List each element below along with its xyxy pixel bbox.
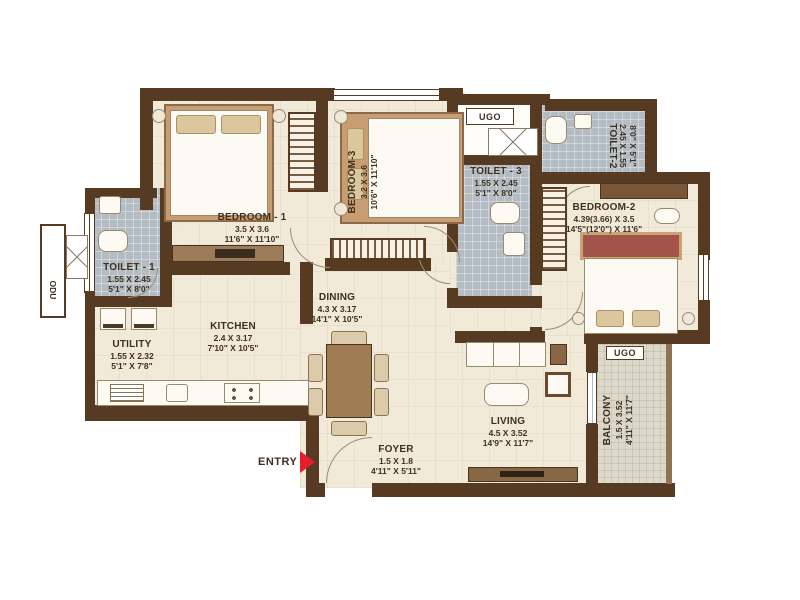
dining-label: DINING 4.3 X 3.17 14'1" X 10'5" xyxy=(312,292,363,324)
kitchen-hob xyxy=(224,383,260,403)
dining-chair xyxy=(331,421,367,436)
bedroom3-label: BEDROOM-3 3.2 X 3.6 10'6" X 11'10" xyxy=(347,151,379,214)
bedroom1-name: BEDROOM - 1 xyxy=(218,212,287,224)
duct-label-box: UGO xyxy=(466,108,514,125)
bedroom2-dim-m: 4.39(3.66) X 3.5 xyxy=(574,214,635,224)
kitchen-dim-ft: 7'10" X 10'5" xyxy=(208,343,259,353)
duct-hatch xyxy=(488,128,538,156)
living-dim-m: 4.5 X 3.52 xyxy=(489,428,528,438)
balcony-dim-ft: 4'11" X 11'7" xyxy=(624,395,634,445)
bedroom3-dim-ft: 10'6" X 11'10" xyxy=(369,154,379,209)
wall-segment xyxy=(140,88,335,101)
balcony-duct-label: UGO xyxy=(614,348,636,358)
dining-table xyxy=(326,344,372,418)
pillow xyxy=(221,115,261,134)
wall-segment xyxy=(545,99,657,111)
bedroom2-rug xyxy=(580,232,682,260)
window xyxy=(698,254,709,304)
living-name: LIVING xyxy=(491,416,526,428)
toilet1-sink xyxy=(99,196,121,214)
wall-segment xyxy=(85,291,95,417)
bedside-table xyxy=(334,202,348,216)
dining-chair xyxy=(374,354,389,382)
dining-chair xyxy=(308,388,323,416)
dining-chair xyxy=(308,354,323,382)
entry-arrow-icon xyxy=(300,451,315,473)
toilet2-label: TOILET-2 2.45 X 1.55 8'0" X 5'1" xyxy=(606,123,638,168)
utility-dim-ft: 5'1" X 7'8" xyxy=(111,361,152,371)
balcony-duct-box: UGO xyxy=(606,346,644,360)
toilet2-name: TOILET-2 xyxy=(606,123,618,168)
odu-label: ODU xyxy=(48,281,58,300)
toilet2-sink xyxy=(574,114,592,129)
kitchen-label: KITCHEN 2.4 X 3.17 7'10" X 10'5" xyxy=(208,321,259,353)
wall-segment xyxy=(85,405,319,421)
odu-text: ODU xyxy=(48,281,58,300)
utility-name: UTILITY xyxy=(112,339,151,351)
foyer-dim-m: 1.5 X 1.8 xyxy=(379,456,413,466)
wall-segment xyxy=(586,424,598,485)
entry-label: ENTRY xyxy=(258,456,297,468)
utility-label: UTILITY 1.55 X 2.32 5'1" X 7'8" xyxy=(110,339,153,371)
toilet1-wc xyxy=(98,230,128,252)
wall-segment xyxy=(645,99,657,183)
bedroom1-wardrobe xyxy=(288,112,316,192)
dining-dim-m: 4.3 X 3.17 xyxy=(318,304,357,314)
wall-segment xyxy=(447,296,542,308)
bedside-table xyxy=(334,110,348,124)
utility-dim-m: 1.55 X 2.32 xyxy=(110,351,153,361)
bedroom2-dresser xyxy=(600,183,688,199)
foyer-label: FOYER 1.5 X 1.8 4'11" X 5'11" xyxy=(371,444,421,476)
toilet3-wc xyxy=(490,202,520,224)
foyer-name: FOYER xyxy=(378,444,413,456)
floor-plan-page: { "plan": { "entry_label": "ENTRY", "roo… xyxy=(0,0,800,600)
bedside-table xyxy=(572,312,585,325)
wall-segment xyxy=(372,483,603,497)
balcony-label: BALCONY 1.5 X 3.52 4'11" X 11'7" xyxy=(602,395,634,446)
left-window-hatch xyxy=(66,235,88,279)
window xyxy=(333,89,441,101)
kitchen-drainboard xyxy=(110,384,144,402)
toilet3-dim-ft: 5'1" X 8'0" xyxy=(475,188,516,198)
washer-base xyxy=(134,324,154,328)
wall-segment xyxy=(85,188,157,198)
toilet3-sink xyxy=(503,232,525,256)
bedside-table xyxy=(152,109,166,123)
bedroom1-label: BEDROOM - 1 3.5 X 3.6 11'6" X 11'10" xyxy=(218,212,287,244)
sliding-door xyxy=(587,372,597,424)
bedroom2-dim-ft: 14'5"(12'0") X 11'6" xyxy=(566,224,642,234)
toilet2-dim-ft: 8'0" X 5'1" xyxy=(628,125,638,166)
sofa xyxy=(466,342,546,367)
wall-segment xyxy=(85,188,95,215)
toilet2-wc xyxy=(545,116,567,144)
toilet3-name: TOILET - 3 xyxy=(470,166,522,178)
bedroom2-wardrobe xyxy=(541,187,567,271)
balcony-name: BALCONY xyxy=(602,395,614,446)
kitchen-dim-m: 2.4 X 3.17 xyxy=(214,333,253,343)
bedroom2-side-table xyxy=(654,208,680,224)
tv xyxy=(500,471,544,477)
wall-segment xyxy=(160,262,290,275)
pillow xyxy=(176,115,216,134)
wall-segment xyxy=(306,483,325,497)
toilet1-dim-m: 1.55 X 2.45 xyxy=(107,274,150,284)
bedroom1-dim-ft: 11'6" X 11'10" xyxy=(225,234,280,244)
wall-segment xyxy=(698,172,710,260)
bedroom3-dim-m: 3.2 X 3.6 xyxy=(359,165,369,199)
bedroom1-dim-m: 3.5 X 3.6 xyxy=(235,224,269,234)
bedroom3-wardrobe xyxy=(330,238,426,260)
toilet3-label: TOILET - 3 1.55 X 2.45 5'1" X 8'0" xyxy=(470,166,522,198)
bedroom3-name: BEDROOM-3 xyxy=(347,151,359,214)
armchair xyxy=(545,372,571,397)
kitchen-name: KITCHEN xyxy=(210,321,256,333)
wall-segment xyxy=(316,90,328,192)
dining-dim-ft: 14'1" X 10'5" xyxy=(312,314,363,324)
dining-chair xyxy=(374,388,389,416)
bedroom3-bed xyxy=(368,118,460,218)
living-dim-ft: 14'9" X 11'7" xyxy=(483,438,533,448)
bedroom2-label: BEDROOM-2 4.39(3.66) X 3.5 14'5"(12'0") … xyxy=(566,202,642,234)
dining-name: DINING xyxy=(319,292,355,304)
toilet2-dim-m: 2.45 X 1.55 xyxy=(618,124,628,167)
pillow xyxy=(632,310,660,327)
washer-base xyxy=(103,324,123,328)
kitchen-sink xyxy=(166,384,188,402)
bedroom2-name: BEDROOM-2 xyxy=(573,202,636,214)
duct-label: UGO xyxy=(479,112,501,122)
desk-laptop xyxy=(215,249,255,258)
foyer-dim-ft: 4'11" X 5'11" xyxy=(371,466,421,476)
odu-ledge xyxy=(40,224,66,318)
side-table xyxy=(550,344,567,365)
balcony-railing xyxy=(666,338,672,484)
bedside-table xyxy=(272,109,286,123)
balcony-dim-m: 1.5 X 3.52 xyxy=(614,401,624,440)
pillow xyxy=(596,310,624,327)
bedside-table xyxy=(682,312,695,325)
toilet3-dim-m: 1.55 X 2.45 xyxy=(474,178,517,188)
toilet1-label: TOILET - 1 1.55 X 2.45 5'1" X 8'0" xyxy=(103,262,155,294)
toilet1-name: TOILET - 1 xyxy=(103,262,155,274)
wall-segment xyxy=(585,483,675,497)
toilet1-dim-ft: 5'1" X 8'0" xyxy=(108,284,149,294)
living-label: LIVING 4.5 X 3.52 14'9" X 11'7" xyxy=(483,416,533,448)
coffee-table xyxy=(484,383,529,406)
